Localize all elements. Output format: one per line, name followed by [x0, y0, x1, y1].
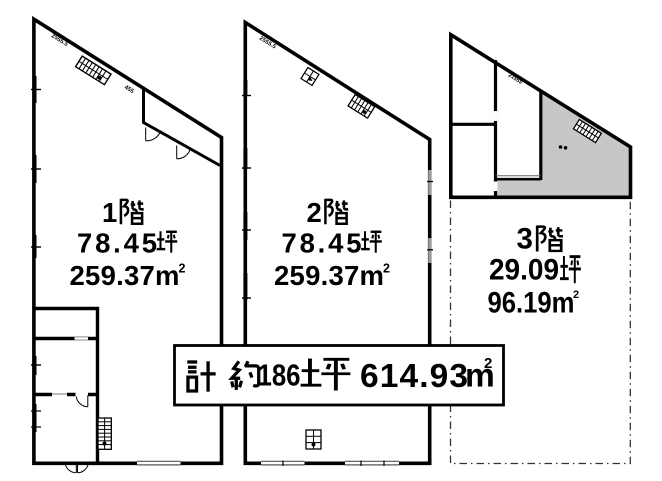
svg-text:2: 2 [484, 355, 492, 372]
svg-text:21555: 21555 [507, 73, 523, 86]
svg-text:2: 2 [179, 262, 186, 276]
svg-text:96.19m: 96.19m [488, 287, 575, 320]
svg-text:455: 455 [123, 85, 135, 96]
svg-text:614.93: 614.93 [360, 358, 468, 395]
svg-text:1: 1 [102, 197, 117, 228]
svg-text:259.37m: 259.37m [274, 260, 384, 291]
svg-text:2: 2 [573, 289, 579, 301]
svg-text:29.09: 29.09 [489, 254, 559, 287]
svg-text:2: 2 [383, 262, 390, 276]
svg-text:78.45: 78.45 [282, 228, 362, 259]
svg-text:259.37m: 259.37m [70, 260, 180, 291]
svg-text:186: 186 [258, 358, 301, 393]
svg-text:78.45: 78.45 [77, 228, 157, 259]
svg-text:2: 2 [307, 197, 322, 228]
svg-text:3: 3 [517, 223, 533, 256]
